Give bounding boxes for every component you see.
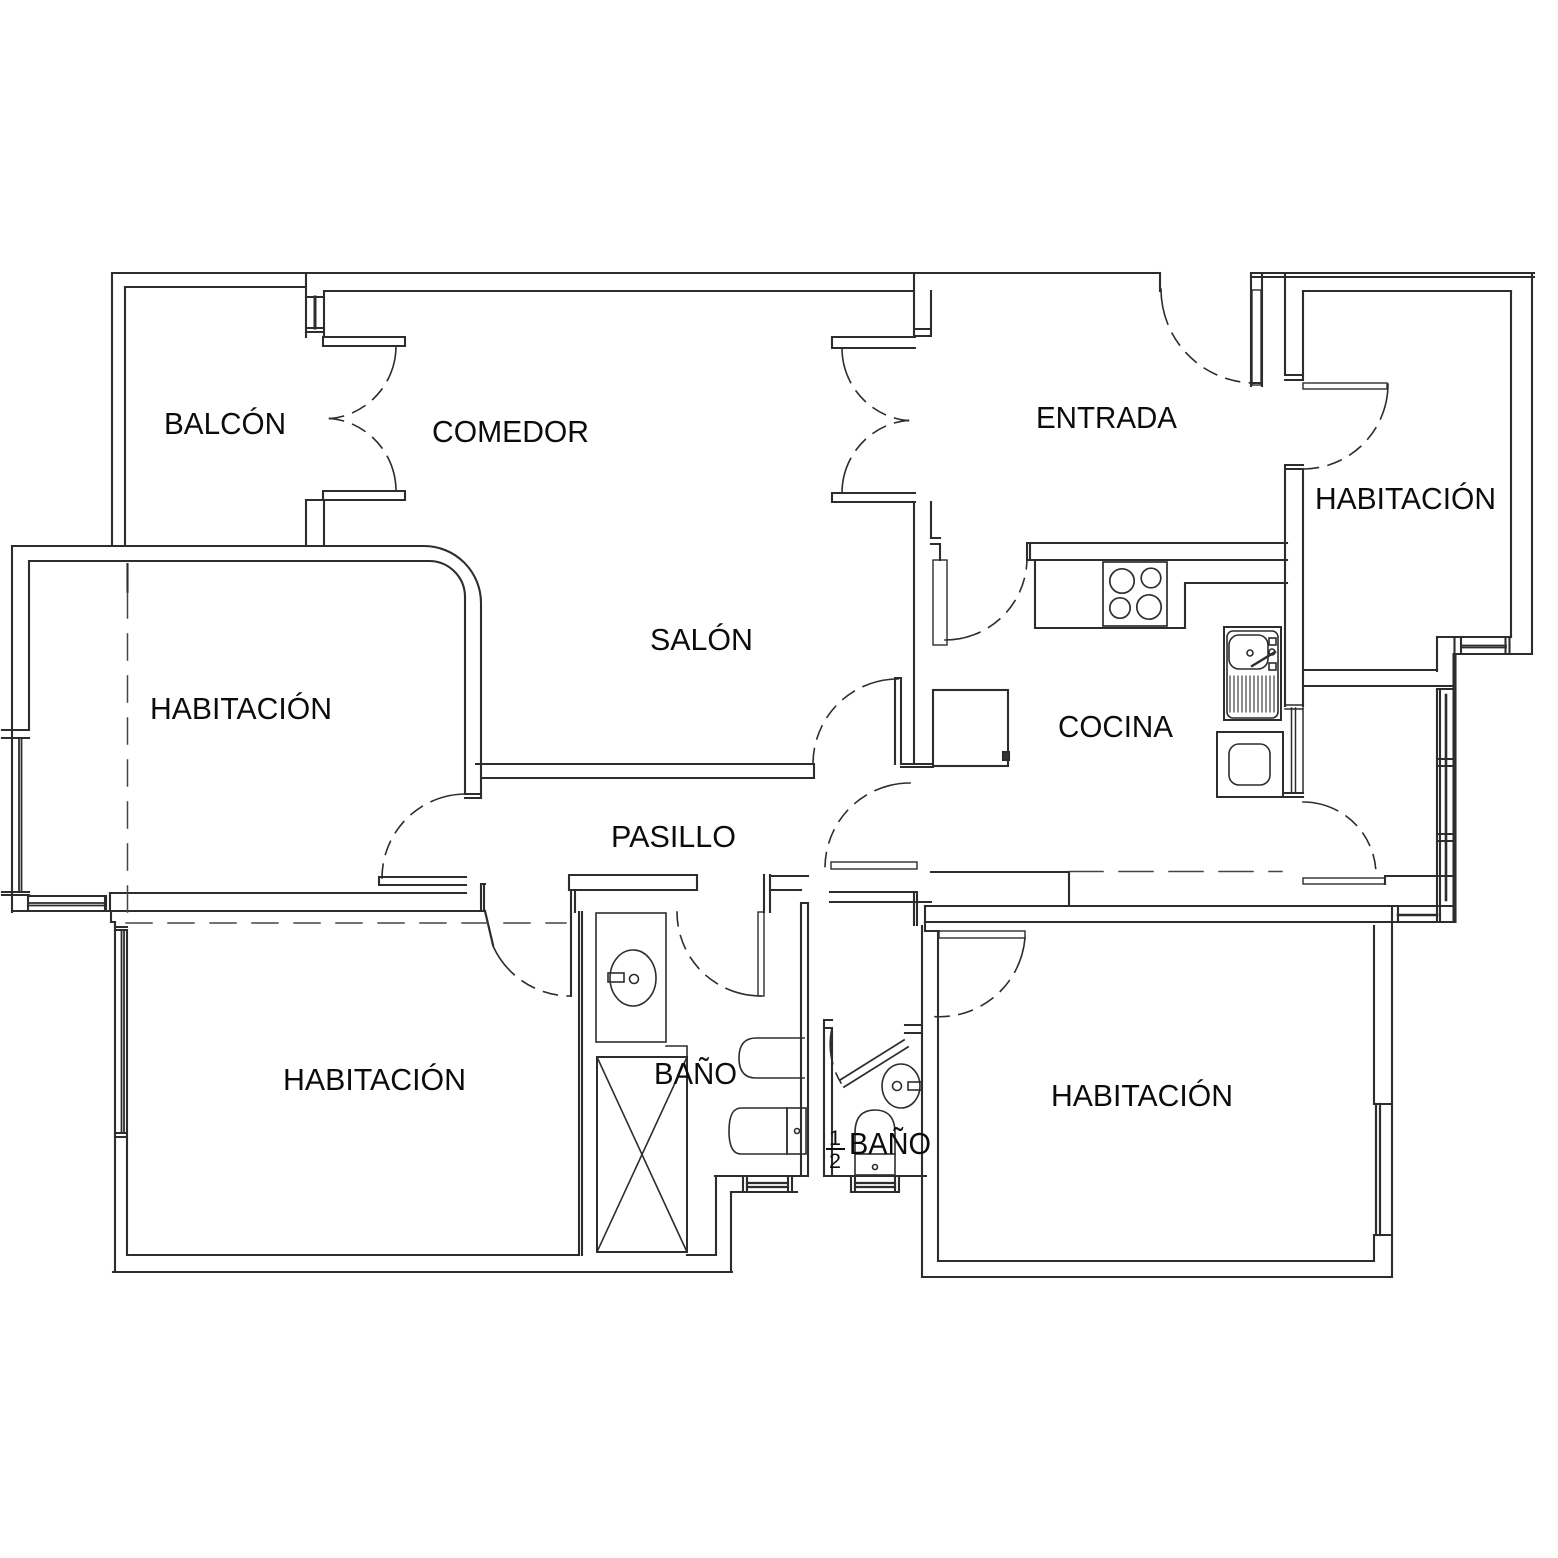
svg-text:2: 2	[829, 1150, 841, 1173]
svg-text:HABITACIÓN: HABITACIÓN	[150, 691, 332, 726]
svg-text:1: 1	[829, 1127, 841, 1150]
svg-text:BAÑO: BAÑO	[849, 1126, 931, 1161]
svg-text:COCINA: COCINA	[1058, 709, 1173, 744]
svg-text:ENTRADA: ENTRADA	[1036, 400, 1177, 435]
svg-text:SALÓN: SALÓN	[650, 622, 753, 657]
svg-text:HABITACIÓN: HABITACIÓN	[1315, 481, 1496, 516]
svg-text:PASILLO: PASILLO	[611, 819, 736, 854]
svg-text:HABITACIÓN: HABITACIÓN	[283, 1062, 466, 1097]
svg-text:COMEDOR: COMEDOR	[432, 414, 589, 449]
svg-text:HABITACIÓN: HABITACIÓN	[1051, 1078, 1233, 1113]
svg-text:BALCÓN: BALCÓN	[164, 406, 286, 441]
svg-text:BAÑO: BAÑO	[654, 1056, 737, 1091]
